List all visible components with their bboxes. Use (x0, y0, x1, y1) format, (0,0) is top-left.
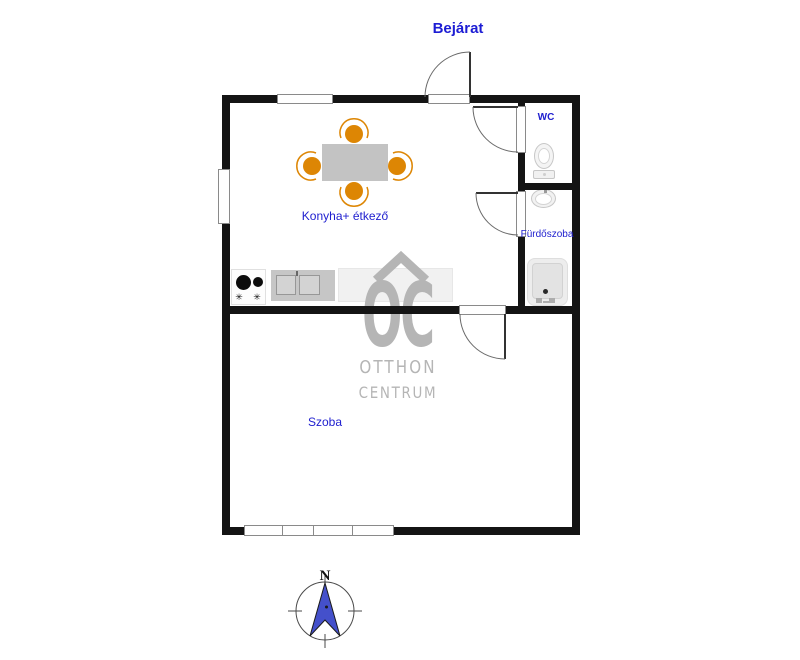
chair-icon (345, 125, 363, 143)
north-needle (310, 583, 340, 636)
floorplan-canvas: Bejárat ✳ ✳ OC OTTHON CENTRUM (0, 0, 800, 660)
door-swing-arc (473, 107, 518, 152)
compass-center-dot (325, 606, 328, 609)
chair-icon (388, 157, 406, 175)
bathroom-door-icon (476, 193, 518, 235)
door-swing-arc (476, 193, 518, 235)
door-swing-arc (460, 314, 505, 359)
door-swing-arc (425, 52, 470, 97)
compass-north-label: N (320, 568, 331, 584)
compass-rose: N (288, 568, 362, 648)
entrance-door-icon (425, 52, 470, 97)
dining-chairs (297, 119, 412, 206)
chair-icon (303, 157, 321, 175)
wc-door-icon (473, 107, 518, 152)
chair-icon (345, 182, 363, 200)
room-door-icon (460, 314, 505, 359)
plan-overlay-layer: N (0, 0, 800, 660)
